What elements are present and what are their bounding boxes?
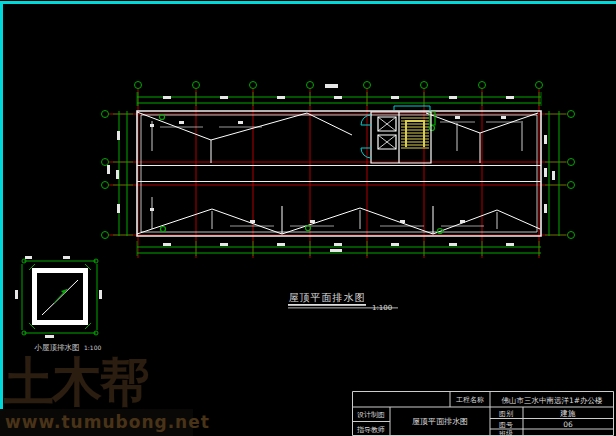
cad-viewport[interactable]: 屋顶平面排水图 1:100 小屋顶排水 bbox=[0, 0, 616, 436]
detail-drawing: 小屋顶排水图 1:100 bbox=[15, 256, 102, 352]
building-outline bbox=[137, 111, 541, 236]
category-label: 图别 bbox=[499, 410, 513, 418]
project-name-label: 工程名称 bbox=[456, 396, 484, 404]
roof-slope-lines bbox=[137, 112, 540, 234]
detail-plan-scale: 1:100 bbox=[84, 344, 101, 351]
slope-label-blobs bbox=[150, 116, 506, 223]
title-block: 工程名称 佛山市三水中南远洋1#办公楼 设计制图 指导教师 屋顶平面排水图 图别… bbox=[352, 391, 614, 436]
stair-core bbox=[361, 106, 431, 163]
category-value: 建施 bbox=[560, 409, 577, 418]
advisor-label: 指导教师 bbox=[356, 426, 385, 434]
class-label: 班级 bbox=[499, 430, 513, 436]
sheet-no-label: 图号 bbox=[499, 421, 513, 429]
dimension-text-blobs bbox=[107, 84, 555, 252]
main-plan-caption: 屋顶平面排水图 1:100 bbox=[288, 292, 398, 312]
main-plan-title: 屋顶平面排水图 bbox=[289, 292, 366, 303]
watermark-url: www.tumubong.net bbox=[0, 409, 193, 436]
design-draft-label: 设计制图 bbox=[357, 411, 385, 419]
main-plan-scale: 1:100 bbox=[372, 304, 392, 312]
sheet-no-value: 06 bbox=[563, 420, 573, 429]
roof-drain-symbols bbox=[160, 112, 443, 234]
grid-axes bbox=[109, 89, 567, 258]
dimension-lines bbox=[113, 92, 566, 256]
watermark-brand: 土木帮 bbox=[4, 352, 194, 413]
stair-treads bbox=[401, 118, 429, 148]
drawing-title: 屋顶平面排水图 bbox=[412, 417, 468, 426]
project-name-value: 佛山市三水中南远洋1#办公楼 bbox=[501, 396, 603, 405]
detail-plan-title: 小屋顶排水图 bbox=[34, 343, 80, 352]
